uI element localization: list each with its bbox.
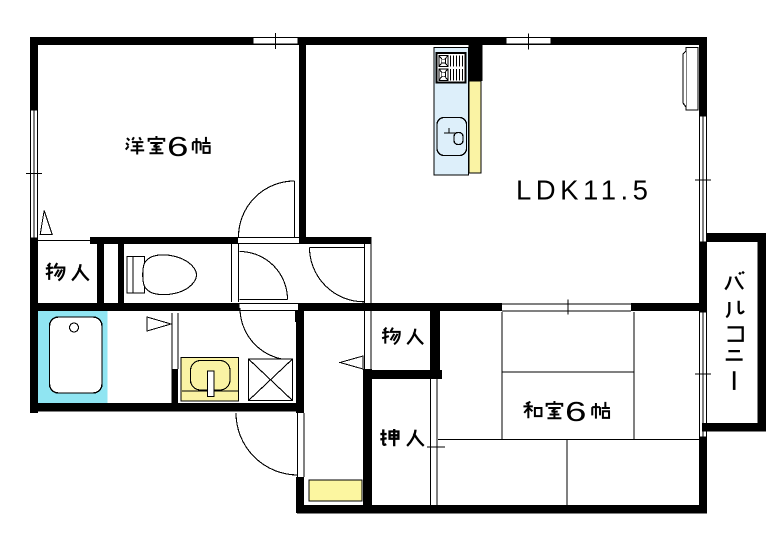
svg-text:LDK11.5: LDK11.5 <box>516 175 652 206</box>
svg-text:6: 6 <box>167 131 189 162</box>
svg-text:6: 6 <box>565 396 587 427</box>
